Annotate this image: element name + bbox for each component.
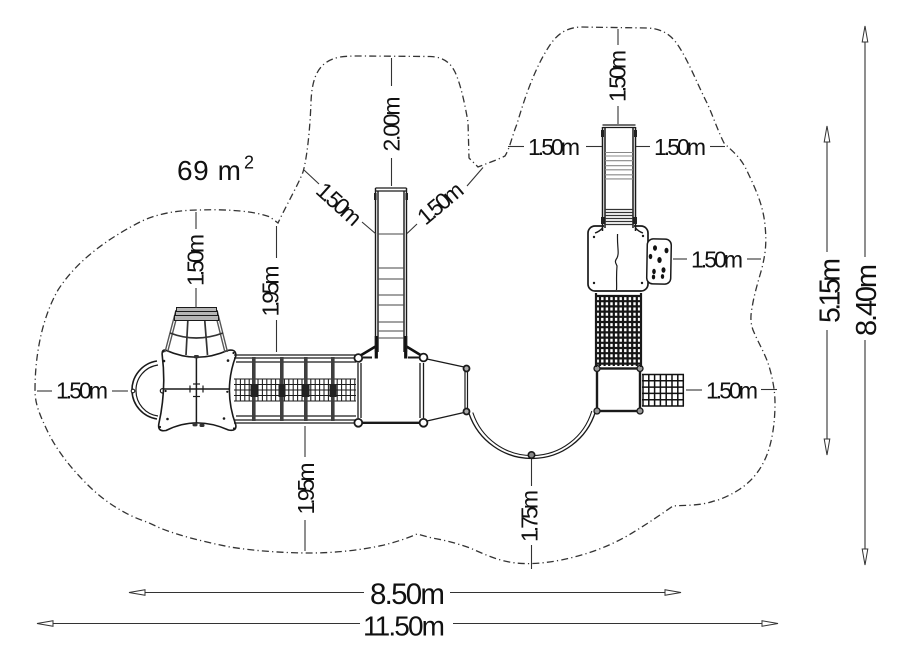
svg-text:1.95m: 1.95m bbox=[293, 463, 319, 515]
svg-text:1.50m: 1.50m bbox=[528, 134, 580, 160]
svg-text:1.50m: 1.50m bbox=[691, 247, 743, 273]
svg-text:1.50m: 1.50m bbox=[183, 234, 209, 286]
svg-text:1.50m: 1.50m bbox=[654, 134, 706, 160]
svg-text:8.40m: 8.40m bbox=[851, 264, 883, 336]
svg-text:1.50m: 1.50m bbox=[56, 378, 108, 404]
svg-text:1.50m: 1.50m bbox=[605, 50, 631, 102]
svg-text:69 m: 69 m bbox=[177, 155, 241, 186]
svg-text:11.50m: 11.50m bbox=[363, 611, 445, 642]
svg-text:1.75m: 1.75m bbox=[517, 490, 543, 542]
svg-text:2.00m: 2.00m bbox=[379, 97, 405, 152]
svg-text:8.50m: 8.50m bbox=[370, 578, 445, 611]
svg-text:1.50m: 1.50m bbox=[706, 378, 758, 404]
svg-text:1.95m: 1.95m bbox=[258, 266, 284, 317]
svg-text:5.15m: 5.15m bbox=[815, 258, 847, 323]
svg-text:2: 2 bbox=[244, 153, 254, 173]
